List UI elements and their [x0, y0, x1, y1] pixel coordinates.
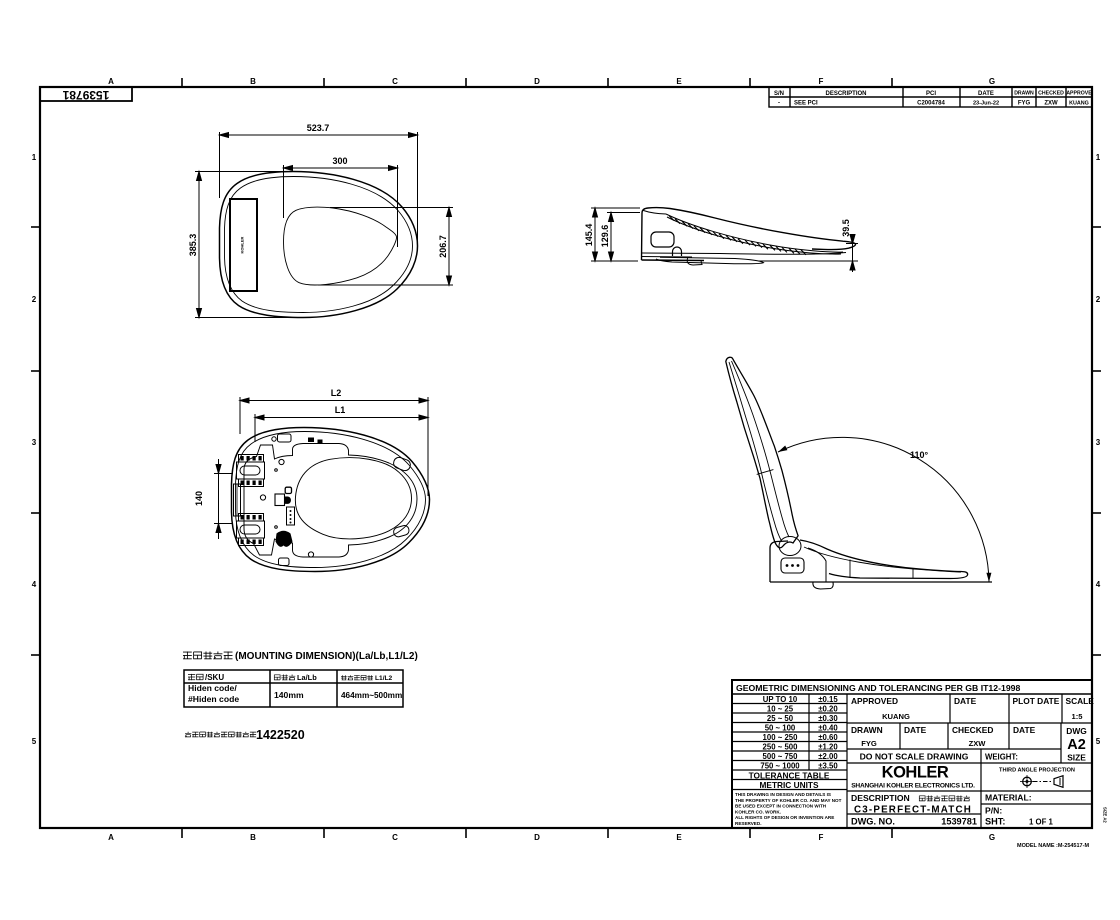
svg-text:P/N:: P/N:	[985, 806, 1002, 816]
svg-text:3: 3	[1096, 438, 1101, 447]
svg-text:DO NOT SCALE DRAWING: DO NOT SCALE DRAWING	[860, 752, 969, 762]
svg-text:145.4: 145.4	[584, 224, 594, 247]
svg-text:ZXW: ZXW	[969, 739, 987, 748]
svg-text:1422520: 1422520	[256, 728, 305, 742]
svg-text:APPROVED: APPROVED	[851, 696, 898, 706]
svg-text:Hiden code/: Hiden code/	[188, 683, 237, 693]
svg-text:G: G	[989, 833, 995, 842]
svg-text:5: 5	[32, 737, 37, 746]
svg-text:±3.50: ±3.50	[818, 762, 838, 771]
svg-text:110°: 110°	[910, 450, 929, 460]
svg-text:MODEL NAME :M-254517-M: MODEL NAME :M-254517-M	[1017, 843, 1089, 849]
svg-text:±0.30: ±0.30	[818, 714, 838, 723]
svg-text:1:5: 1:5	[1072, 712, 1084, 721]
svg-text:±0.20: ±0.20	[818, 705, 838, 714]
svg-text:KOHLER: KOHLER	[240, 236, 245, 253]
svg-text:A: A	[108, 77, 114, 86]
svg-text:DATE: DATE	[954, 696, 977, 706]
svg-text:GEOMETRIC DIMENSIONING AND TOL: GEOMETRIC DIMENSIONING AND TOLERANCING P…	[736, 683, 1020, 693]
svg-text:DATE: DATE	[1013, 725, 1036, 735]
svg-text:1 OF 1: 1 OF 1	[1029, 818, 1053, 827]
svg-text:DATE: DATE	[978, 91, 994, 97]
svg-text:F: F	[819, 77, 824, 86]
svg-text:S/N: S/N	[774, 91, 784, 97]
svg-text:SIZE A2: SIZE A2	[1103, 807, 1108, 823]
svg-text:C: C	[392, 833, 398, 842]
svg-text:B: B	[250, 833, 256, 842]
svg-text:140: 140	[194, 491, 204, 506]
svg-text:L2: L2	[331, 388, 342, 398]
svg-text:50 ~ 100: 50 ~ 100	[765, 724, 796, 733]
svg-text:KOHLER CO. WORK.: KOHLER CO. WORK.	[735, 809, 781, 814]
svg-text:1: 1	[32, 153, 37, 162]
svg-text:140mm: 140mm	[274, 690, 304, 700]
svg-text:D: D	[534, 77, 540, 86]
svg-text:RESERVED.: RESERVED.	[735, 821, 761, 826]
svg-text:±0.15: ±0.15	[818, 695, 838, 704]
svg-text:THE PROPERTY OF KOHLER CO. AND: THE PROPERTY OF KOHLER CO. AND MAY NOT	[735, 798, 842, 803]
svg-text:DATE: DATE	[904, 725, 927, 735]
svg-text:39.5: 39.5	[841, 219, 851, 237]
svg-text:THIS DRAWING IN DESIGN AND DET: THIS DRAWING IN DESIGN AND DETAILS IS	[735, 792, 831, 797]
svg-text:#Hiden code: #Hiden code	[188, 694, 239, 704]
svg-text:300: 300	[332, 156, 347, 166]
svg-text:L1: L1	[335, 405, 346, 415]
svg-text:D: D	[534, 833, 540, 842]
svg-text:G: G	[989, 77, 995, 86]
svg-text:A2: A2	[1067, 737, 1086, 753]
svg-text:±2.00: ±2.00	[818, 752, 838, 761]
svg-text:METRIC UNITS: METRIC UNITS	[760, 780, 819, 790]
svg-text:SIZE: SIZE	[1067, 753, 1086, 763]
svg-text:464mm~500mm: 464mm~500mm	[341, 691, 402, 700]
svg-text:ZXW: ZXW	[1044, 101, 1058, 107]
svg-text:CHECKED: CHECKED	[952, 725, 993, 735]
svg-text:WEIGHT:: WEIGHT:	[985, 753, 1018, 762]
svg-text:FYG: FYG	[1018, 101, 1031, 107]
svg-text:SHANGHAI KOHLER ELECTRONICS LT: SHANGHAI KOHLER ELECTRONICS LTD.	[851, 783, 975, 790]
svg-text:-: -	[778, 101, 780, 107]
svg-text:25 ~ 50: 25 ~ 50	[767, 714, 794, 723]
svg-text:A: A	[108, 833, 114, 842]
svg-text:CHECKED: CHECKED	[1038, 91, 1064, 97]
svg-text:129.6: 129.6	[600, 225, 610, 248]
svg-text:PCI: PCI	[926, 91, 936, 97]
svg-text:523.7: 523.7	[307, 123, 330, 133]
svg-text:2: 2	[1096, 295, 1101, 304]
svg-text:FYG: FYG	[861, 739, 877, 748]
svg-text:±0.60: ±0.60	[818, 733, 838, 742]
svg-text:KOHLER: KOHLER	[882, 764, 949, 782]
svg-text:KUANG: KUANG	[1069, 101, 1089, 107]
svg-text:C: C	[392, 77, 398, 86]
svg-text:/SKU: /SKU	[205, 673, 224, 682]
svg-text:100 ~ 250: 100 ~ 250	[763, 733, 799, 742]
svg-text:750 ~ 1000: 750 ~ 1000	[760, 762, 800, 771]
svg-text:DWG: DWG	[1066, 726, 1086, 736]
svg-text:MATERIAL:: MATERIAL:	[985, 793, 1032, 803]
svg-text:SHT:: SHT:	[985, 817, 1005, 827]
svg-text:SCALE: SCALE	[1066, 696, 1095, 706]
svg-text:La/Lb: La/Lb	[297, 673, 317, 682]
svg-text:3: 3	[32, 438, 37, 447]
svg-text:B: B	[250, 77, 256, 86]
svg-text:E: E	[676, 77, 682, 86]
svg-text:DESCRIPTION: DESCRIPTION	[851, 793, 910, 803]
svg-text:F: F	[819, 833, 824, 842]
svg-text:10 ~ 25: 10 ~ 25	[767, 705, 794, 714]
svg-text:APPROVE: APPROVE	[1066, 91, 1092, 97]
svg-text:23-Jun-22: 23-Jun-22	[973, 101, 999, 107]
svg-text:KUANG: KUANG	[882, 712, 910, 721]
svg-text:5: 5	[1096, 737, 1101, 746]
svg-text:C2004784: C2004784	[917, 101, 945, 107]
svg-text:THIRD ANGLE PROJECTION: THIRD ANGLE PROJECTION	[999, 768, 1075, 774]
svg-text:L1/L2: L1/L2	[375, 675, 393, 682]
svg-text:ALL RIGHTS OF DESIGN OR INVENT: ALL RIGHTS OF DESIGN OR INVENTION ARE	[735, 815, 834, 820]
svg-text:250 ~ 500: 250 ~ 500	[763, 743, 799, 752]
svg-text:4: 4	[32, 580, 37, 589]
svg-text:500 ~ 750: 500 ~ 750	[763, 752, 799, 761]
svg-text:1539781: 1539781	[62, 88, 109, 102]
svg-text:206.7: 206.7	[438, 235, 448, 258]
svg-text:DRAWN: DRAWN	[1014, 91, 1034, 97]
svg-text:(MOUNTING DIMENSION)(La/Lb,L1/: (MOUNTING DIMENSION)(La/Lb,L1/L2)	[235, 651, 418, 662]
svg-text:±0.40: ±0.40	[818, 724, 838, 733]
svg-text:4: 4	[1096, 580, 1101, 589]
svg-text:SEE PCI: SEE PCI	[794, 101, 818, 107]
svg-text:2: 2	[32, 295, 37, 304]
svg-text:385.3: 385.3	[188, 234, 198, 257]
svg-text:UP TO 10: UP TO 10	[763, 695, 798, 704]
svg-text:1539781: 1539781	[941, 817, 977, 827]
svg-text:DRAWN: DRAWN	[851, 725, 883, 735]
svg-text:TOLERANCE TABLE: TOLERANCE TABLE	[749, 771, 830, 781]
svg-text:BE USED EXCEPT IN CONNECTION W: BE USED EXCEPT IN CONNECTION WITH	[735, 804, 827, 809]
svg-text:DESCRIPTION: DESCRIPTION	[825, 91, 866, 97]
svg-text:PLOT DATE: PLOT DATE	[1013, 696, 1060, 706]
svg-text:1: 1	[1096, 153, 1101, 162]
svg-text:E: E	[676, 833, 682, 842]
svg-text:±1.20: ±1.20	[818, 743, 838, 752]
svg-text:DWG. NO.: DWG. NO.	[851, 817, 895, 827]
